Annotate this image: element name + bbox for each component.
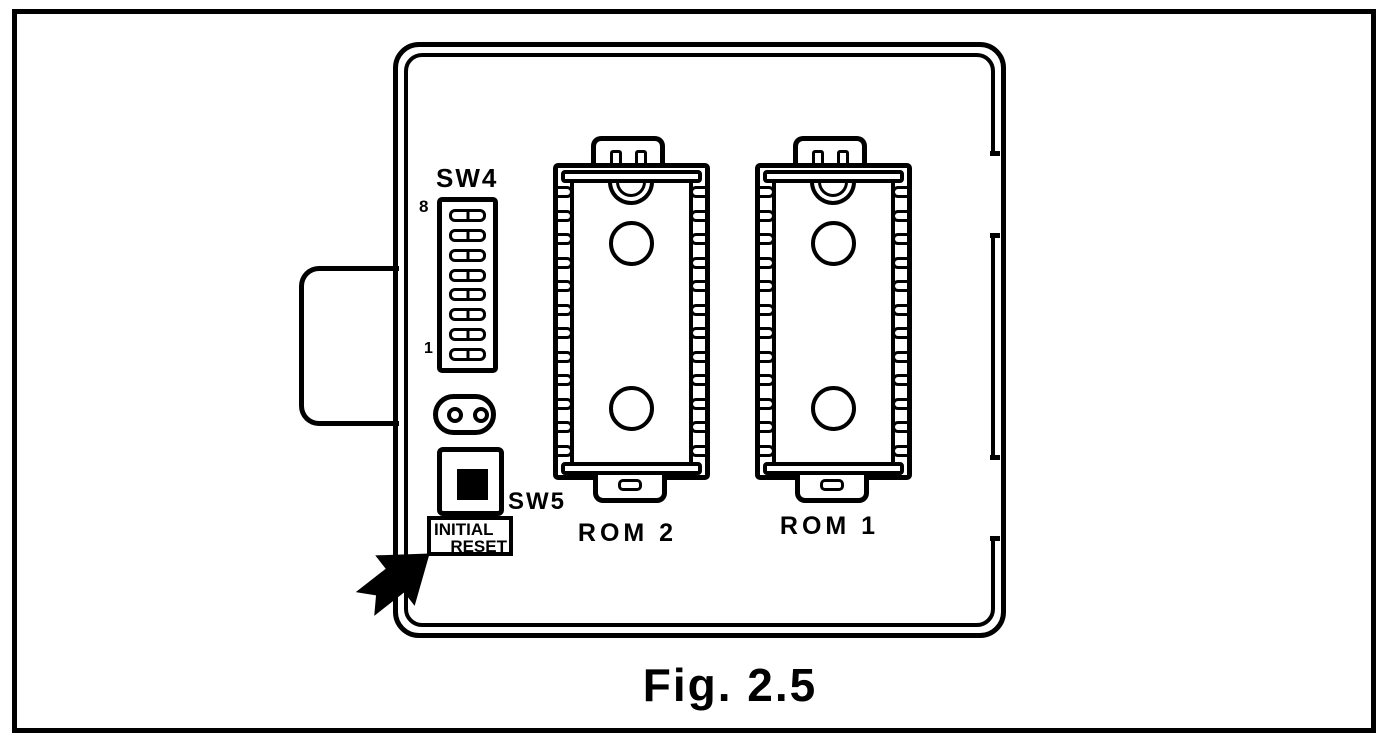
right-edge-cap	[990, 151, 1000, 156]
dip-switch-position	[449, 229, 486, 242]
dip-switch-divider	[466, 231, 469, 240]
right-edge-gap	[990, 155, 1000, 233]
chip-retainer-bar-bottom	[561, 462, 702, 475]
jumper-hole	[447, 407, 463, 423]
pointer-arrow-icon	[345, 518, 445, 658]
dip-switch-position	[449, 209, 486, 222]
right-edge-gap	[990, 460, 1000, 536]
circuit-board: SW4 8 1 SW5 INITIAL RESET	[393, 42, 1006, 638]
dip-switch-divider	[466, 211, 469, 220]
sw5-button	[437, 447, 504, 516]
chip-hole-top	[811, 221, 856, 266]
dip-switch-position	[449, 269, 486, 282]
dip-position-1-label: 1	[424, 340, 433, 358]
dip-switch-position	[449, 348, 486, 361]
left-connector-tab	[299, 266, 399, 426]
sw5-button-plunger	[457, 469, 488, 500]
chip-hole-bottom	[811, 386, 856, 431]
jumper-hole	[473, 407, 489, 423]
sw4-label: SW4	[436, 163, 498, 194]
right-edge-cap	[990, 536, 1000, 541]
dip-switch-position	[449, 308, 486, 321]
dip-switch-position	[449, 288, 486, 301]
dip-switch-divider	[466, 251, 469, 260]
chip-hole-top	[609, 221, 654, 266]
chip-hole-bottom	[609, 386, 654, 431]
right-edge-cap	[990, 233, 1000, 238]
chip-retainer-bar-top	[561, 170, 702, 183]
socket-bottom-tab	[795, 475, 869, 503]
dip-switch-divider	[466, 330, 469, 339]
dip-position-8-label: 8	[419, 197, 428, 217]
figure-caption: Fig. 2.5	[600, 658, 860, 712]
chip-retainer-bar-top	[763, 170, 904, 183]
socket-bottom-tab	[593, 475, 667, 503]
dip-switch-divider	[466, 350, 469, 359]
rom1-socket	[755, 136, 912, 508]
dip-switch-divider	[466, 310, 469, 319]
rom1-label: ROM 1	[751, 512, 908, 541]
dip-switch-position	[449, 249, 486, 262]
tab-slot	[618, 479, 642, 491]
dip-switch-divider	[466, 271, 469, 280]
jumper-icon	[433, 394, 496, 435]
sw4-dip-switch	[437, 197, 498, 373]
chip-retainer-bar-bottom	[763, 462, 904, 475]
right-edge-cap	[990, 455, 1000, 460]
rom2-label: ROM 2	[549, 519, 706, 548]
dip-switch-divider	[466, 290, 469, 299]
dip-switch-position	[449, 328, 486, 341]
tab-slot	[820, 479, 844, 491]
figure-page: SW4 8 1 SW5 INITIAL RESET	[0, 0, 1392, 744]
rom2-socket	[553, 136, 710, 508]
